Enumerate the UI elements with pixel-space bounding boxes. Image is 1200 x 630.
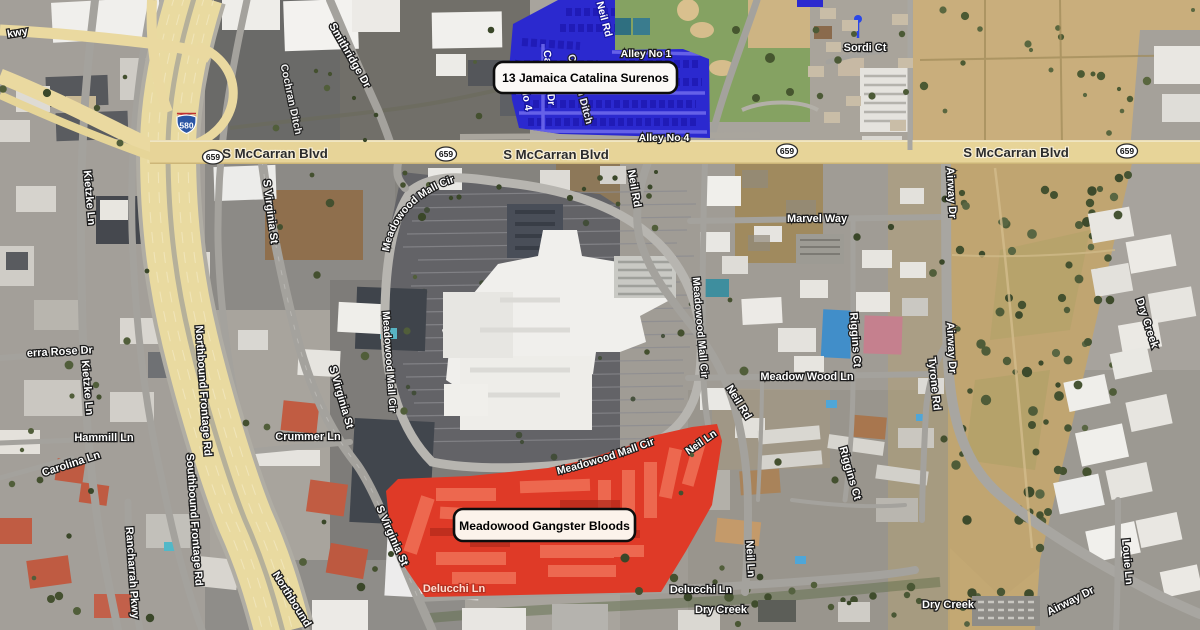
svg-text:Dry Creek: Dry Creek (922, 599, 975, 611)
svg-text:Crummer Ln: Crummer Ln (275, 431, 341, 443)
svg-text:Dry Creek: Dry Creek (695, 604, 748, 616)
svg-text:S McCarran Blvd: S McCarran Blvd (222, 146, 328, 161)
svg-text:Delucchi Ln: Delucchi Ln (423, 583, 486, 595)
svg-text:659: 659 (1120, 146, 1134, 156)
svg-text:S McCarran Blvd: S McCarran Blvd (503, 147, 609, 162)
svg-text:Neil Ln: Neil Ln (743, 540, 757, 578)
svg-text:Delucchi Ln: Delucchi Ln (670, 584, 733, 596)
svg-text:Alley No 4: Alley No 4 (639, 132, 690, 144)
svg-text:Hammill Ln: Hammill Ln (74, 432, 134, 444)
svg-text:13 Jamaica Catalina Surenos: 13 Jamaica Catalina Surenos (502, 71, 669, 85)
svg-text:S McCarran Blvd: S McCarran Blvd (963, 145, 1069, 160)
svg-text:580: 580 (179, 121, 193, 131)
svg-text:Meadowood Gangster Bloods: Meadowood Gangster Bloods (459, 519, 630, 533)
svg-text:659: 659 (206, 152, 220, 162)
svg-text:659: 659 (439, 149, 453, 159)
svg-text:Alley No 1: Alley No 1 (621, 48, 672, 60)
svg-text:Meadow Wood Ln: Meadow Wood Ln (760, 371, 854, 383)
svg-text:Marvel Way: Marvel Way (787, 213, 848, 225)
svg-text:659: 659 (780, 146, 794, 156)
svg-text:Sordi Ct: Sordi Ct (844, 42, 887, 54)
